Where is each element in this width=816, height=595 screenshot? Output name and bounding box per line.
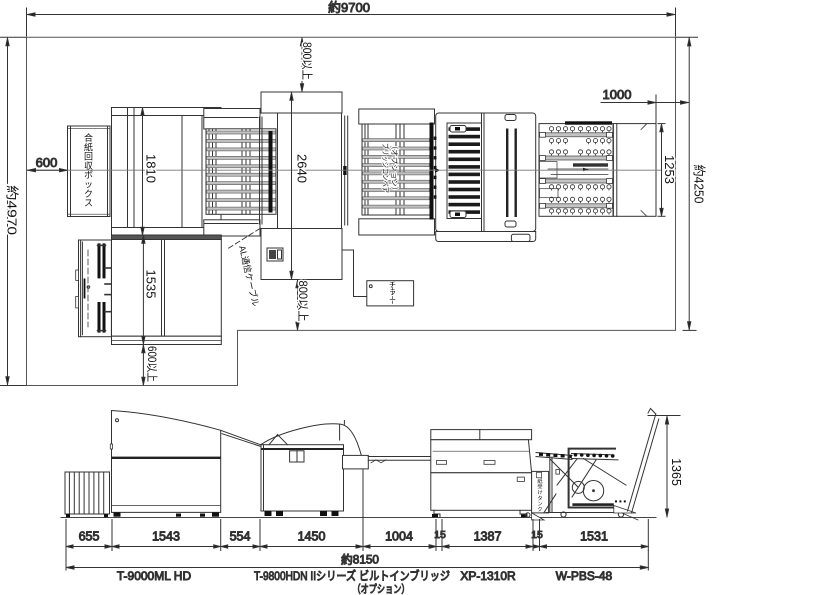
svg-text:1387: 1387	[474, 530, 502, 544]
svg-text:（オプション）: （オプション）	[353, 583, 410, 595]
svg-text:600: 600	[36, 155, 58, 170]
svg-text:1000: 1000	[603, 87, 632, 102]
svg-text:1543: 1543	[152, 530, 180, 544]
svg-text:2640: 2640	[295, 154, 310, 183]
svg-text:1535: 1535	[144, 270, 159, 299]
svg-text:ク: ク	[537, 506, 542, 513]
svg-text:1365: 1365	[669, 458, 683, 486]
svg-text:約9700: 約9700	[328, 0, 370, 15]
svg-text:554: 554	[230, 530, 251, 544]
svg-text:ブリッジコンベア: ブリッジコンベア	[381, 143, 391, 193]
svg-text:1253: 1253	[662, 155, 677, 184]
svg-text:800以上: 800以上	[296, 281, 309, 322]
svg-text:655: 655	[79, 530, 100, 544]
svg-text:約4250: 約4250	[691, 165, 706, 204]
svg-text:XP-1310R: XP-1310R	[460, 569, 516, 583]
svg-text:ラ: ラ	[389, 289, 396, 297]
svg-text:約4970: 約4970	[5, 185, 20, 235]
svg-text:チ: チ	[389, 281, 396, 289]
svg-text:T-9000ML HD: T-9000ML HD	[117, 569, 192, 583]
svg-text:1450: 1450	[298, 530, 326, 544]
svg-text:15: 15	[434, 529, 446, 541]
svg-text:1004: 1004	[385, 530, 413, 544]
svg-text:1531: 1531	[580, 530, 608, 544]
svg-text:（オプション）: （オプション）	[390, 142, 399, 195]
svg-text:800以上: 800以上	[300, 42, 313, 80]
svg-text:W-PBS-48: W-PBS-48	[556, 569, 613, 583]
svg-text:T-9800HDN IIシリーズ ビルトインブリッジ: T-9800HDN IIシリーズ ビルトインブリッジ	[254, 568, 450, 583]
svg-text:約8150: 約8150	[341, 553, 379, 567]
svg-text:15: 15	[531, 529, 543, 541]
svg-text:ス: ス	[84, 198, 93, 208]
svg-text:ー: ー	[389, 297, 396, 304]
svg-text:600以上: 600以上	[145, 346, 158, 382]
svg-text:1810: 1810	[144, 154, 159, 183]
